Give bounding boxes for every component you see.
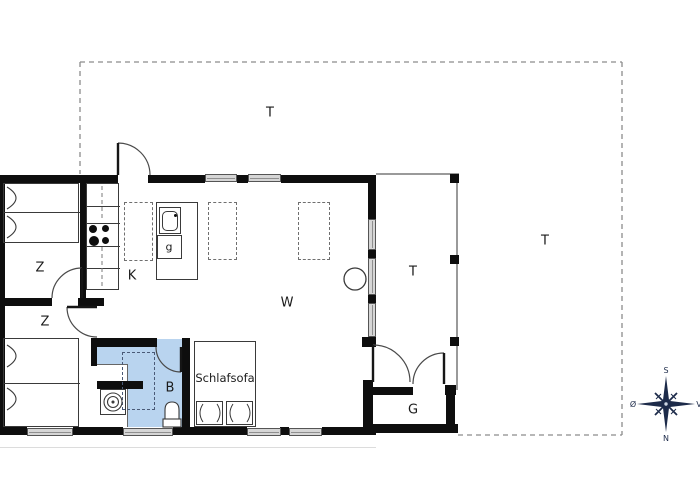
compass-south-label: S <box>663 366 668 375</box>
covered-terrace-top-edge <box>376 173 459 175</box>
south-wall-segment <box>73 427 123 435</box>
sofa-cushion <box>196 401 223 425</box>
covered-terrace-label: T <box>409 265 417 280</box>
compass-west-label: V <box>696 400 700 409</box>
wood-stove-icon <box>344 268 366 290</box>
bed-divider <box>4 212 80 213</box>
window <box>27 428 73 436</box>
north-wall-segment <box>148 175 205 183</box>
double-bed <box>3 183 79 243</box>
window <box>248 174 281 182</box>
stove-burner-icon <box>89 225 97 233</box>
compass-north-label: N <box>663 434 669 443</box>
east-wall-segment <box>368 250 376 258</box>
terrace-top-label: T <box>266 106 274 121</box>
sofa-cushion <box>226 401 253 425</box>
floor-plan: S N Ø V T T T Z Z K W B G g Schlafsofa <box>0 0 700 500</box>
window <box>205 174 237 182</box>
stove-burner-icon <box>102 225 109 232</box>
shed-south-wall <box>363 424 458 433</box>
hall-wall-segment <box>0 298 52 306</box>
southeast-corner-post <box>362 337 376 347</box>
bathroom-east-wall <box>182 338 190 427</box>
window <box>368 219 376 250</box>
bedroom-upper-label: Z <box>36 261 45 276</box>
south-wall-segment <box>0 427 27 435</box>
dishwasher-label: g <box>166 241 173 254</box>
north-wall-segment <box>281 175 376 183</box>
living-room-label: W <box>281 296 294 311</box>
shed-label: G <box>408 403 418 418</box>
shed-northeast-post <box>445 385 456 395</box>
stove-burner-icon <box>89 236 99 246</box>
shower-area-dashed <box>122 352 155 410</box>
bedroom-lower-label: Z <box>41 315 50 330</box>
compass-east-label: Ø <box>630 399 636 409</box>
faucet-icon <box>174 214 177 217</box>
window <box>368 303 376 337</box>
window <box>368 258 376 295</box>
dining-table-dashed <box>208 202 237 260</box>
window <box>289 428 322 436</box>
window <box>247 428 281 436</box>
terrace-right-label: T <box>541 234 549 249</box>
shed-north-wall <box>373 387 413 395</box>
bed-divider <box>4 383 80 384</box>
window <box>123 428 173 436</box>
dining-table-dashed <box>298 202 330 260</box>
north-wall-segment <box>237 175 248 183</box>
sleeper-sofa-label: Schlafsofa <box>195 371 254 385</box>
kitchen-counter <box>86 183 119 290</box>
stove-burner-icon <box>102 237 109 244</box>
south-wall-shadow <box>0 447 376 448</box>
east-wall-segment <box>368 295 376 303</box>
east-wall-segment <box>368 175 376 219</box>
kitchen-label: K <box>128 269 137 284</box>
washing-machine <box>100 389 126 415</box>
north-wall-segment <box>0 175 118 183</box>
south-wall-segment <box>173 427 247 435</box>
terrace-post <box>450 255 459 264</box>
terrace-post <box>450 337 459 346</box>
hall-wall-segment <box>78 298 104 306</box>
double-bed <box>3 338 79 427</box>
covered-terrace-right-edge <box>456 174 458 390</box>
bathroom-label: B <box>166 381 175 396</box>
compass-rose: S N Ø V <box>630 366 700 443</box>
terrace-post <box>450 174 459 183</box>
bathroom-north-wall <box>91 338 157 347</box>
dining-table-dashed <box>124 202 153 261</box>
south-wall-segment <box>280 427 289 435</box>
